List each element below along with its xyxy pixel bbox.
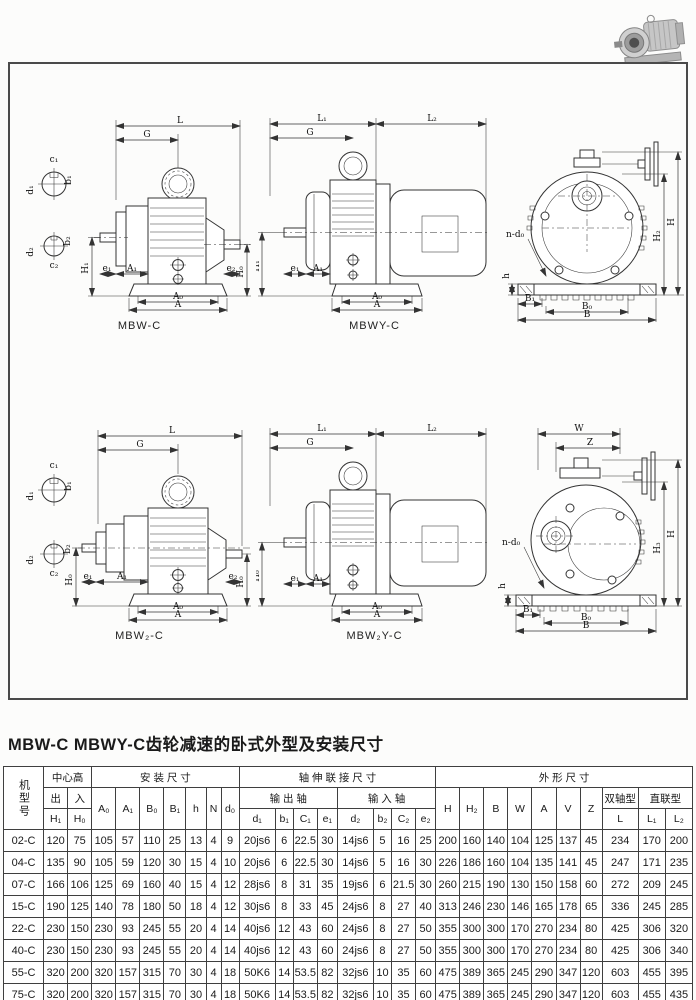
value-cell: 290 [532,962,556,984]
value-cell: 60 [317,940,337,962]
table-body: 02-C120751055711025134920js6622.53014js6… [4,830,693,1000]
value-cell: 80 [580,940,602,962]
value-cell: 320 [44,962,68,984]
value-cell: 315 [140,962,164,984]
dim-label: b₂ [63,236,73,246]
value-cell: 245 [508,984,532,1000]
value-cell: 14 [221,940,239,962]
value-cell: 340 [665,940,692,962]
dim-label: H [667,530,677,538]
col-header: e₁ [317,809,337,830]
dim-label: B₁ [525,294,535,304]
value-cell: 425 [602,918,638,940]
value-cell: 389 [460,984,484,1000]
value-cell: 105 [92,830,116,852]
dim-label: c₂ [50,569,59,579]
col-header: L₂ [665,809,692,830]
model-cell: 75-C [4,984,44,1000]
value-cell: 20js6 [239,852,275,874]
value-cell: 125 [92,874,116,896]
col-header: L₁ [638,809,665,830]
dim-label: A₁ [312,264,323,274]
value-cell: 306 [638,918,665,940]
col-header: Z [580,788,602,830]
drawing-endview-bottom: W Z n-d₀ h B₁ B₀ B H₃ H [498,424,688,634]
value-cell: 365 [484,962,508,984]
value-cell: 31 [293,874,317,896]
value-cell: 55 [164,918,186,940]
value-cell: 306 [638,940,665,962]
dim-label: H₃ [653,542,663,554]
value-cell: 245 [665,874,692,896]
value-cell: 25 [416,830,436,852]
value-cell: 40 [164,874,186,896]
value-cell: 300 [484,940,508,962]
col-header: h [186,788,206,830]
dim-label: A [174,610,182,620]
dim-label: e₁ [291,264,300,274]
value-cell: 455 [638,962,665,984]
drawing-mbw2-c: L G c₁ b₁ d₁ c₂ b₂ d₂ H₀ H₀ e₁ A₁ e₂ A₀ … [26,420,253,642]
value-cell: 105 [92,852,116,874]
value-cell: 18 [221,962,239,984]
model-cell: 15-C [4,896,44,918]
value-cell: 35 [392,984,416,1000]
value-cell: 8 [275,896,293,918]
dim-label: A [373,300,381,310]
value-cell: 347 [556,962,580,984]
value-cell: 475 [436,984,460,1000]
drawing-mbw-c: L G c₁ b₁ d₁ c₂ b₂ d₂ H₁ H₀ e₁ A₁ e₂ A₀ … [26,110,253,332]
col-header: b₂ [373,809,391,830]
shaft-section-2: c₂ b₂ d₂ [26,232,73,271]
value-cell: 45 [580,830,602,852]
value-cell: 27 [392,896,416,918]
value-cell: 10 [373,962,391,984]
catalog-page: L G c₁ b₁ d₁ c₂ b₂ d₂ H₁ H₀ e₁ A₁ e₂ A₀ … [0,0,696,1000]
value-cell: 245 [140,918,164,940]
value-cell: 70 [164,962,186,984]
dim-label: Z [587,438,593,448]
table-row: 15-C19012514078180501841230js68334524js6… [4,896,693,918]
value-cell: 30 [186,984,206,1000]
value-cell: 190 [484,874,508,896]
value-cell: 50 [416,918,436,940]
dim-label: H₁ [81,262,91,273]
value-cell: 30js6 [239,896,275,918]
value-cell: 53.5 [293,962,317,984]
value-cell: 186 [460,852,484,874]
value-cell: 20js6 [239,830,275,852]
col-header: B [484,788,508,830]
value-cell: 125 [532,830,556,852]
model-cell: 07-C [4,874,44,896]
value-cell: 8 [373,918,391,940]
table-row: 02-C120751055711025134920js6622.53014js6… [4,830,693,852]
value-cell: 4 [206,874,221,896]
endview-top: n-d₀ h B₁ B₀ B H₂ H [502,118,687,326]
value-cell: 24js6 [337,918,373,940]
drawing-caption: MBWY-C [349,320,400,332]
value-cell: 290 [532,984,556,1000]
value-cell: 30 [317,830,337,852]
dim-label: H₀ [256,570,262,582]
col-header: H₁ [44,809,68,830]
value-cell: 320 [665,918,692,940]
dim-label: e₁ [84,572,93,582]
value-cell: 320 [92,962,116,984]
col-header: L [602,809,638,830]
dim-label: A₁ [116,572,127,582]
value-cell: 389 [460,962,484,984]
model-cell: 04-C [4,852,44,874]
value-cell: 135 [532,852,556,874]
dim-label: G [136,440,143,450]
col-header: 输 出 轴 [239,788,337,809]
value-cell: 200 [665,830,692,852]
col-header: N [206,788,221,830]
value-cell: 140 [92,896,116,918]
col-header: 出 [44,788,68,809]
value-cell: 246 [460,896,484,918]
value-cell: 300 [484,918,508,940]
value-cell: 27 [392,918,416,940]
value-cell: 30 [164,852,186,874]
table-header: 机型号 中心高 安 装 尺 寸 轴 伸 联 接 尺 寸 外 形 尺 寸 出 入 … [4,767,693,830]
dim-label: L₁ [317,424,327,434]
dim-label: h [502,273,512,279]
dim-label: B [584,310,591,320]
col-header: 中心高 [44,767,92,788]
dim-label: c₁ [50,461,59,471]
table-row: 22-C23015023093245552041440js612436024js… [4,918,693,940]
model-cell: 40-C [4,940,44,962]
value-cell: 234 [602,830,638,852]
value-cell: 285 [665,896,692,918]
value-cell: 200 [436,830,460,852]
value-cell: 15 [186,874,206,896]
dim-label: H [667,218,677,226]
col-header: 入 [68,788,92,809]
value-cell: 270 [532,918,556,940]
drawing-caption: MBW₂-C [115,630,164,642]
value-cell: 234 [556,918,580,940]
value-cell: 245 [638,896,665,918]
value-cell: 455 [638,984,665,1000]
table-row: 40-C23015023093245552041440js612436024js… [4,940,693,962]
value-cell: 13 [186,830,206,852]
col-header: H [436,788,460,830]
value-cell: 120 [580,962,602,984]
value-cell: 60 [580,874,602,896]
value-cell: 157 [116,962,140,984]
value-cell: 12 [275,918,293,940]
dim-label: b₁ [64,175,74,184]
value-cell: 8 [373,896,391,918]
shaft-section-1: c₁ b₁ d₁ [26,461,74,506]
dim-label: d₁ [26,491,36,500]
drawing-caption: MBW-C [118,320,161,332]
value-cell: 12 [221,896,239,918]
col-header: C₂ [392,809,416,830]
dim-label: b₁ [64,481,74,490]
value-cell: 35 [317,874,337,896]
value-cell: 82 [317,984,337,1000]
value-cell: 50 [164,896,186,918]
value-cell: 25 [164,830,186,852]
mbwy-c-view: L₁ L₂ G H₁ e₁ A₁ A₀ A [256,110,493,316]
col-header: 外 形 尺 寸 [436,767,693,788]
dim-label: B [583,621,590,631]
col-header: H₂ [460,788,484,830]
col-header: A₀ [92,788,116,830]
value-cell: 20 [186,918,206,940]
col-header: H₀ [68,809,92,830]
value-cell: 40 [416,896,436,918]
value-cell: 170 [638,830,665,852]
drawing-endview-top: n-d₀ h B₁ B₀ B H₂ H [502,118,687,326]
value-cell: 5 [373,852,391,874]
value-cell: 135 [44,852,68,874]
value-cell: 16 [392,830,416,852]
value-cell: 230 [44,940,68,962]
value-cell: 4 [206,984,221,1000]
value-cell: 160 [140,874,164,896]
value-cell: 4 [206,896,221,918]
value-cell: 4 [206,830,221,852]
value-cell: 355 [436,940,460,962]
endview-bottom: W Z n-d₀ h B₁ B₀ B H₃ H [498,424,688,634]
value-cell: 200 [68,962,92,984]
value-cell: 50 [416,940,436,962]
value-cell: 4 [206,940,221,962]
model-cell: 22-C [4,918,44,940]
value-cell: 150 [532,874,556,896]
value-cell: 160 [460,830,484,852]
dimension-table-wrap: 机型号 中心高 安 装 尺 寸 轴 伸 联 接 尺 寸 外 形 尺 寸 出 入 … [3,766,693,1000]
value-cell: 209 [638,874,665,896]
value-cell: 14js6 [337,830,373,852]
drawing-caption: MBW₂Y-C [346,630,402,642]
shaft-section-1: c₁ b₁ d₁ [26,155,74,200]
value-cell: 230 [484,896,508,918]
value-cell: 45 [317,896,337,918]
col-header: B₁ [164,788,186,830]
value-cell: 226 [436,852,460,874]
value-cell: 82 [317,962,337,984]
value-cell: 435 [665,984,692,1000]
value-cell: 14 [275,962,293,984]
value-cell: 234 [556,940,580,962]
col-header: A [532,788,556,830]
value-cell: 32js6 [337,984,373,1000]
dim-label: e₁ [103,264,112,274]
value-cell: 235 [665,852,692,874]
value-cell: 347 [556,984,580,1000]
value-cell: 10 [221,852,239,874]
value-cell: 40js6 [239,918,275,940]
col-header: d₁ [239,809,275,830]
value-cell: 22.5 [293,830,317,852]
value-cell: 120 [140,852,164,874]
table-row: 55-C320200320157315703041850K61453.58232… [4,962,693,984]
value-cell: 320 [44,984,68,1000]
value-cell: 40js6 [239,940,275,962]
value-cell: 90 [68,852,92,874]
value-cell: 70 [164,984,186,1000]
value-cell: 190 [44,896,68,918]
value-cell: 53.5 [293,984,317,1000]
value-cell: 355 [436,918,460,940]
dim-label: e₂ [227,264,236,274]
dim-label: H₀ [65,574,75,586]
value-cell: 170 [508,918,532,940]
value-cell: 75 [68,830,92,852]
col-header: V [556,788,580,830]
value-cell: 110 [140,830,164,852]
dim-label: W [574,424,584,434]
dim-label: c₂ [50,261,59,271]
value-cell: 170 [508,940,532,962]
value-cell: 30 [317,852,337,874]
value-cell: 43 [293,918,317,940]
dim-label: L₁ [317,114,327,124]
value-cell: 365 [484,984,508,1000]
value-cell: 60 [416,984,436,1000]
value-cell: 18 [186,896,206,918]
value-cell: 50K6 [239,962,275,984]
page-title: MBW-C MBWY-C齿轮减速的卧式外型及安装尺寸 [8,731,384,755]
dim-label: d₂ [26,555,36,565]
value-cell: 313 [436,896,460,918]
value-cell: 18 [221,984,239,1000]
value-cell: 603 [602,984,638,1000]
mbw2-c-view: L G c₁ b₁ d₁ c₂ b₂ d₂ H₀ H₀ e₁ A₁ e₂ A₀ … [26,420,253,626]
value-cell: 215 [460,874,484,896]
value-cell: 33 [293,896,317,918]
table-row: 04-C1359010559120301541020js6622.53014js… [4,852,693,874]
dimension-table: 机型号 中心高 安 装 尺 寸 轴 伸 联 接 尺 寸 外 形 尺 寸 出 入 … [3,766,693,1000]
value-cell: 55 [164,940,186,962]
col-header-model: 机型号 [4,767,44,830]
dim-label: B₁ [523,605,533,615]
dim-label: e₁ [291,574,300,584]
value-cell: 6 [373,874,391,896]
value-cell: 30 [416,874,436,896]
value-cell: 260 [436,874,460,896]
value-cell: 425 [602,940,638,962]
dim-label: c₁ [50,155,59,165]
value-cell: 300 [460,940,484,962]
col-header: W [508,788,532,830]
value-cell: 60 [317,918,337,940]
value-cell: 6 [275,830,293,852]
value-cell: 8 [373,940,391,962]
col-header: d₂ [337,809,373,830]
value-cell: 315 [140,984,164,1000]
dim-label: A₁ [126,264,137,274]
value-cell: 146 [508,896,532,918]
value-cell: 137 [556,830,580,852]
value-cell: 10 [373,984,391,1000]
value-cell: 80 [580,918,602,940]
col-header: 双轴型 [602,788,638,809]
value-cell: 120 [580,984,602,1000]
value-cell: 45 [580,852,602,874]
value-cell: 104 [508,852,532,874]
value-cell: 336 [602,896,638,918]
value-cell: 125 [68,896,92,918]
value-cell: 50K6 [239,984,275,1000]
value-cell: 93 [116,918,140,940]
value-cell: 35 [392,962,416,984]
value-cell: 60 [416,962,436,984]
value-cell: 104 [508,830,532,852]
value-cell: 30 [186,962,206,984]
dim-label: L₂ [427,424,437,434]
value-cell: 300 [460,918,484,940]
value-cell: 15 [186,852,206,874]
dim-label: d₁ [26,185,36,194]
value-cell: 27 [392,940,416,962]
value-cell: 178 [556,896,580,918]
value-cell: 12 [221,874,239,896]
value-cell: 160 [484,852,508,874]
value-cell: 171 [638,852,665,874]
value-cell: 20 [186,940,206,962]
value-cell: 4 [206,852,221,874]
value-cell: 8 [275,874,293,896]
value-cell: 28js6 [239,874,275,896]
value-cell: 270 [532,940,556,962]
drawing-mbw2y-c: L₁ L₂ G H₀ e₁ A₁ A₀ A MBW₂Y-C [256,420,493,642]
value-cell: 200 [68,984,92,1000]
value-cell: 157 [116,984,140,1000]
value-cell: 19js6 [337,874,373,896]
value-cell: 247 [602,852,638,874]
value-cell: 30 [416,852,436,874]
col-header: e₂ [416,809,436,830]
value-cell: 24js6 [337,896,373,918]
value-cell: 150 [68,940,92,962]
value-cell: 165 [532,896,556,918]
dim-label: n-d₀ [502,538,521,548]
value-cell: 9 [221,830,239,852]
col-header: d₀ [221,788,239,830]
value-cell: 57 [116,830,140,852]
col-header: 轴 伸 联 接 尺 寸 [239,767,436,788]
value-cell: 32js6 [337,962,373,984]
value-cell: 78 [116,896,140,918]
mbw-c-view: L G c₁ b₁ d₁ c₂ b₂ d₂ H₁ H₀ e₁ A₁ e₂ A₀ … [26,110,253,316]
dim-label: A [373,610,381,620]
col-header: 直联型 [638,788,692,809]
dim-label: A [174,300,182,310]
dim-label: G [143,130,150,140]
value-cell: 22.5 [293,852,317,874]
dim-label: H₀ [236,266,246,278]
value-cell: 320 [92,984,116,1000]
col-header: C₁ [293,809,317,830]
value-cell: 130 [508,874,532,896]
value-cell: 65 [580,896,602,918]
value-cell: 475 [436,962,460,984]
drawing-mbwy-c: L₁ L₂ G H₁ e₁ A₁ A₀ A MBWY-C [256,110,493,332]
value-cell: 245 [140,940,164,962]
value-cell: 141 [556,852,580,874]
value-cell: 4 [206,918,221,940]
value-cell: 603 [602,962,638,984]
